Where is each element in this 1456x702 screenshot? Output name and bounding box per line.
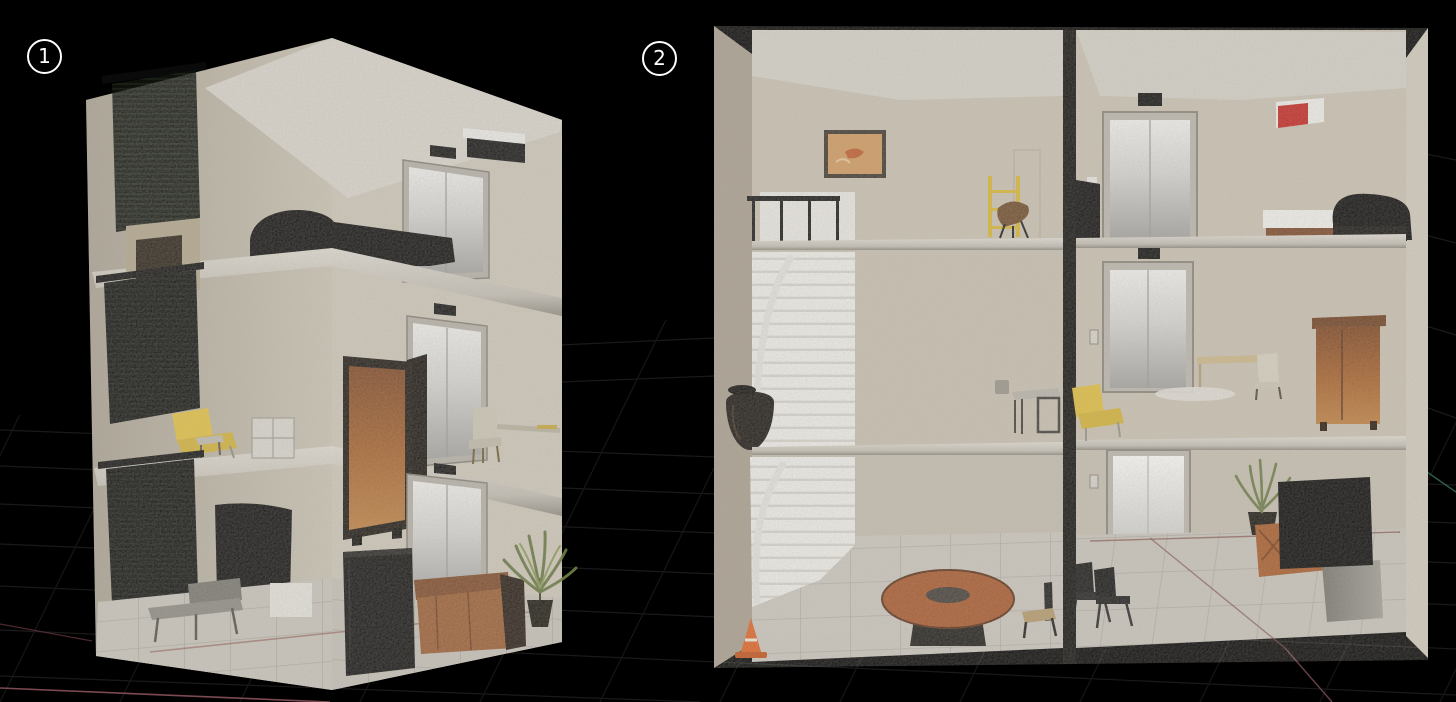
scene: 1 2 bbox=[0, 0, 1456, 702]
view-2-number: 2 bbox=[653, 48, 666, 68]
view-2-label: 2 bbox=[642, 41, 677, 76]
view-1-number: 1 bbox=[38, 46, 51, 66]
view-1-label: 1 bbox=[27, 39, 62, 74]
dollhouse-render bbox=[0, 0, 1456, 702]
